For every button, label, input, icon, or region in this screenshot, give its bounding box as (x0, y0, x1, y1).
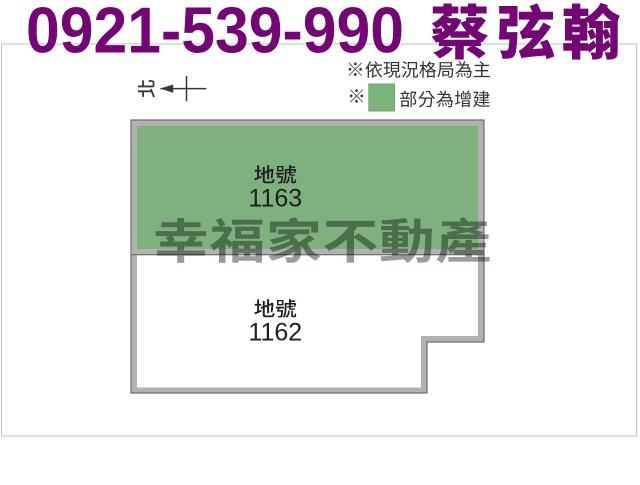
svg-text:1162: 1162 (248, 319, 302, 347)
svg-text:1163: 1163 (248, 185, 302, 213)
svg-text:0921-539-990: 0921-539-990 (26, 0, 404, 67)
